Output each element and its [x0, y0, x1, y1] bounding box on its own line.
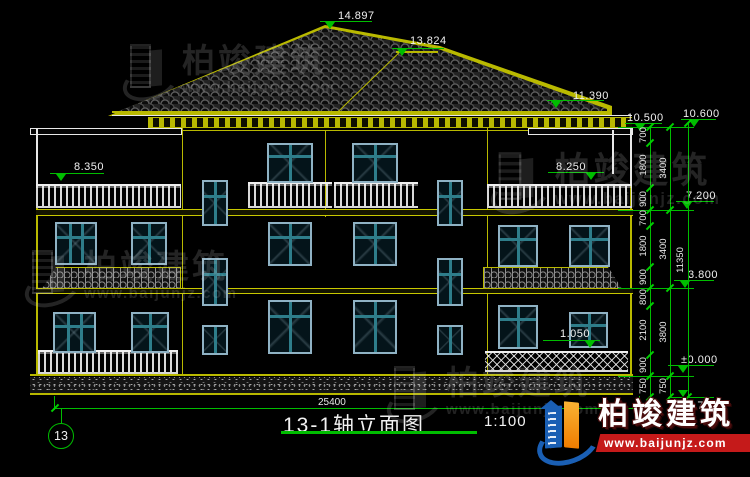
title-underline [281, 431, 477, 434]
stair-window [202, 325, 228, 355]
terrace-balustrade-right [487, 184, 632, 208]
brand-logo: 柏竣建筑 www.baijunjz.com [538, 400, 750, 462]
dim-value: 1800 [638, 147, 650, 183]
stair-window [437, 180, 463, 226]
window [55, 222, 97, 265]
elevation-value: 1.050 [560, 328, 590, 340]
grid-bubble-label: 13 [54, 429, 68, 443]
dim-total-width: 25400 [318, 397, 346, 408]
dim-chain-detail-line [650, 127, 651, 397]
drawing-title: 13-1轴立面图 [283, 409, 425, 439]
window [353, 222, 397, 266]
dim-chain-total-line [688, 123, 689, 397]
window [268, 222, 312, 266]
balcony-balustrade-center-left [248, 182, 332, 208]
top-ring-beam-line [182, 130, 528, 131]
wall-center-left [182, 127, 183, 376]
french-door [268, 300, 312, 354]
brand-url: www.baijunjz.com [604, 436, 750, 450]
watermark-logo-icon [122, 40, 174, 98]
dim-total-height: 11350 [675, 242, 687, 278]
wall-center-right [487, 127, 488, 376]
stair-window [437, 325, 463, 355]
parapet-slab-right [528, 128, 633, 135]
brand-url-banner: www.baijunjz.com [596, 434, 750, 452]
elevation-value: 8.350 [74, 161, 104, 173]
dim-value: 800 [638, 279, 650, 315]
floor3-slab-band [36, 209, 633, 216]
balcony-balustrade-center-right [334, 182, 418, 208]
stair-window [437, 258, 463, 306]
eave-line-upper [112, 111, 609, 113]
window [53, 312, 96, 353]
plinth-stipple-band [30, 377, 633, 393]
window [569, 225, 610, 267]
terrace-balustrade-left [36, 184, 181, 208]
brand-logo-icon [538, 400, 592, 462]
window [498, 305, 538, 349]
dim-value: 3400 [658, 150, 670, 186]
elevation-value: 13.824 [410, 35, 447, 47]
dim-value: 3800 [658, 314, 670, 350]
window [131, 222, 167, 265]
eave-dentil-band [148, 117, 632, 128]
canopy-left [42, 267, 181, 289]
window [498, 225, 538, 267]
drawing-scale: 1:100 [484, 413, 527, 430]
parapet-post-right [630, 128, 632, 186]
window [131, 312, 169, 353]
stair-window [202, 180, 228, 226]
grid-bubble-13: 13 [48, 423, 74, 449]
dim-value: 2100 [638, 312, 650, 348]
dim-value: 3400 [658, 231, 670, 267]
stair-window [202, 258, 228, 306]
plinth-top-line [30, 374, 633, 376]
dim-chain-floors-line [670, 127, 671, 397]
french-door [353, 300, 397, 354]
window [352, 143, 398, 183]
window [267, 143, 313, 183]
canopy-right [483, 267, 622, 289]
parapet-return-right [612, 130, 614, 174]
cad-elevation-drawing: 14.897 13.824 11.390 10.500 10.600 8.350… [0, 0, 750, 477]
ground-balustrade-left [38, 350, 178, 374]
parapet-post-left [36, 128, 38, 186]
ground-balustrade-right [485, 351, 628, 372]
eave-fascia-line [112, 115, 632, 116]
ground-line [30, 393, 633, 395]
parapet-slab-left [30, 128, 182, 135]
brand-name: 柏竣建筑 [598, 400, 750, 430]
